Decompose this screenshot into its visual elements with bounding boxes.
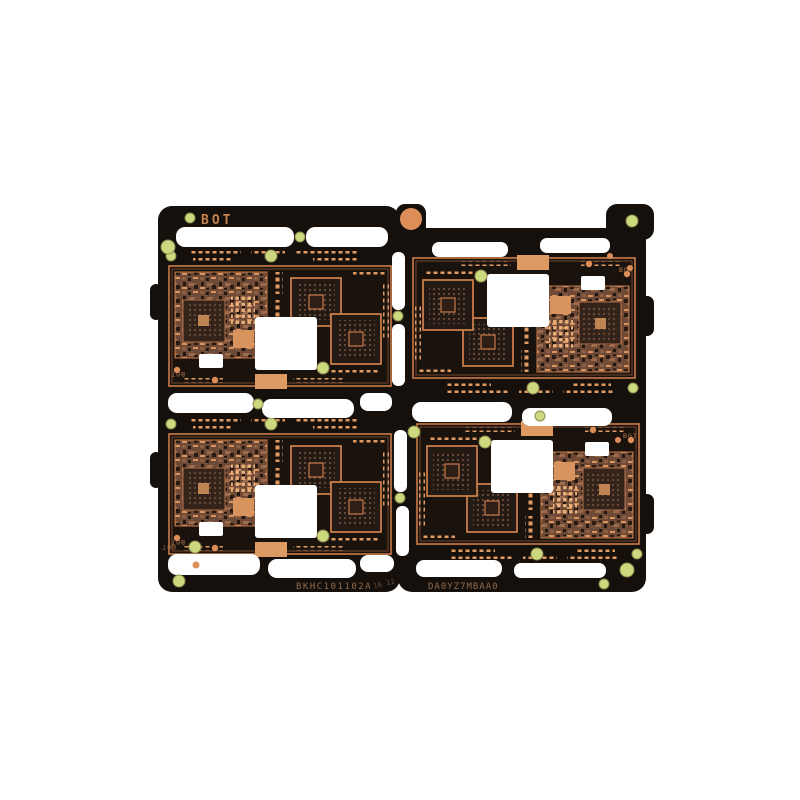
serial-marking-left: BKHC101102A	[296, 582, 372, 592]
routing-slot	[168, 393, 254, 413]
fiducial-hole	[393, 311, 403, 321]
copper-dot	[193, 562, 200, 569]
routing-slot	[268, 559, 356, 578]
fiducial-hole	[253, 399, 263, 409]
panel-edge-bump	[150, 452, 162, 488]
pcb-panel-photo: BOT	[0, 0, 800, 800]
routing-slot	[416, 560, 502, 577]
routing-slot	[540, 238, 610, 253]
bot-marking-rail-corner: BOT	[161, 543, 176, 551]
fiducial-hole	[620, 563, 634, 577]
serial-marking-right: DA0YZ7MBAA0	[428, 582, 499, 592]
fiducial-hole	[173, 575, 185, 587]
fiducial-hole	[185, 213, 195, 223]
copper-dot	[607, 253, 613, 259]
routing-slot	[392, 252, 405, 310]
copper-dot	[615, 437, 621, 443]
routing-slot	[396, 506, 409, 556]
routing-slot	[432, 242, 508, 257]
pcb-panel-graphic: BOT	[0, 0, 800, 800]
fiducial-hole	[535, 411, 545, 421]
panel-edge-bump	[640, 296, 654, 336]
routing-slot	[412, 402, 512, 422]
fiducial-hole	[626, 215, 638, 227]
routing-slot	[176, 227, 294, 247]
routing-slot	[306, 227, 388, 247]
routing-slot	[360, 555, 394, 572]
fiducial-hole	[599, 579, 609, 589]
fiducial-hole	[295, 232, 305, 242]
fiducial-hole	[408, 426, 420, 438]
board-unit-top-right	[411, 255, 638, 394]
routing-slot	[360, 393, 392, 411]
board-unit-top-left	[166, 250, 393, 389]
routing-slot	[262, 399, 354, 418]
routing-slot	[394, 430, 407, 492]
board-unit-bottom-left	[166, 418, 393, 557]
routing-slot	[392, 324, 405, 386]
board-unit-bottom-right	[415, 421, 642, 560]
bot-marking-top: BOT	[201, 213, 233, 228]
routing-slot	[514, 563, 606, 578]
panel-edge-bump	[150, 284, 162, 320]
fiducial-hole	[161, 240, 175, 254]
copper-tooling-circle	[400, 208, 422, 230]
fiducial-hole	[395, 493, 405, 503]
panel-edge-bump	[640, 494, 654, 534]
copper-dot	[627, 265, 633, 271]
fiducial-hole	[189, 541, 201, 553]
routing-slot	[168, 554, 260, 575]
